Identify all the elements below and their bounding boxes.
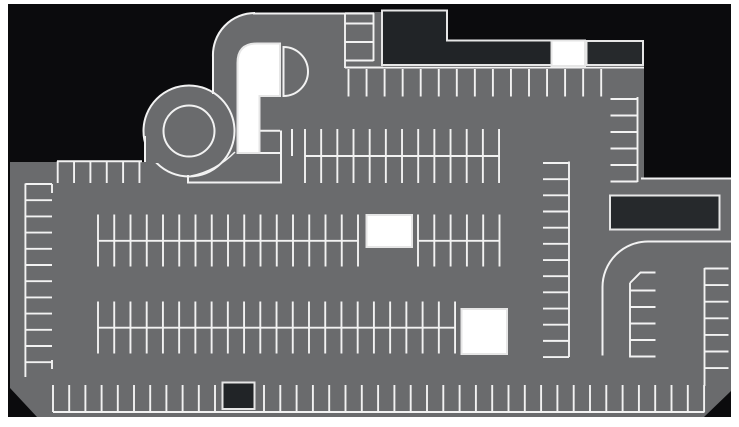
building-south-white	[462, 309, 508, 354]
ground-notch-topright	[644, 162, 731, 179]
upper-lot-surface	[345, 67, 644, 190]
spiral-ramp-inner-circle	[164, 106, 215, 157]
building-south-kiosk	[223, 383, 255, 410]
building-north-east	[587, 41, 644, 65]
parking-lot-map-page	[0, 0, 739, 427]
building-center-white	[367, 215, 413, 247]
building-north-white	[552, 41, 586, 67]
ramp-corner-surface	[213, 13, 345, 190]
building-east	[610, 196, 720, 230]
stall-row-south	[53, 385, 705, 412]
parking-lot-map	[0, 0, 739, 427]
